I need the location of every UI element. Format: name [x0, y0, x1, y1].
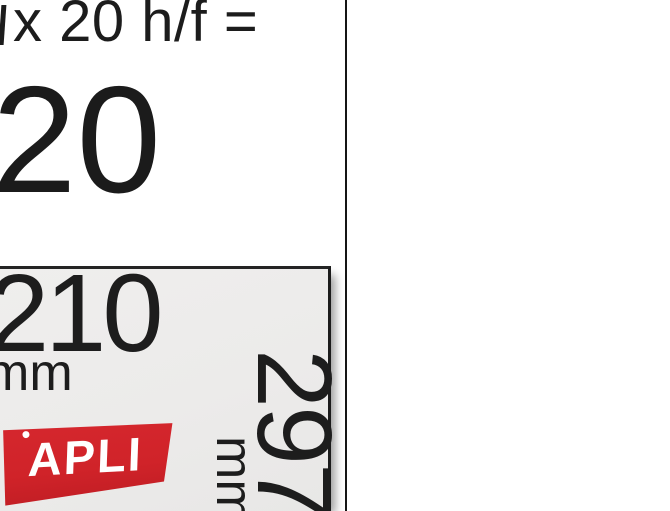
cutoff-glyph-fragment	[0, 5, 6, 45]
product-package-image[interactable]: 210 mm 297 mm APLI	[0, 266, 331, 511]
labels-per-sheet-formula: x 20 h/f =	[13, 0, 258, 52]
labels-count-value: 20	[0, 64, 161, 216]
apli-brand-text: APLI	[27, 429, 144, 485]
apli-logo: APLI	[1, 422, 174, 507]
product-image-canvas: x 20 h/f = 20 210 mm 297 mm APLI	[0, 0, 670, 511]
package-width-unit: mm	[0, 347, 73, 399]
package-height-unit: mm	[208, 436, 260, 511]
